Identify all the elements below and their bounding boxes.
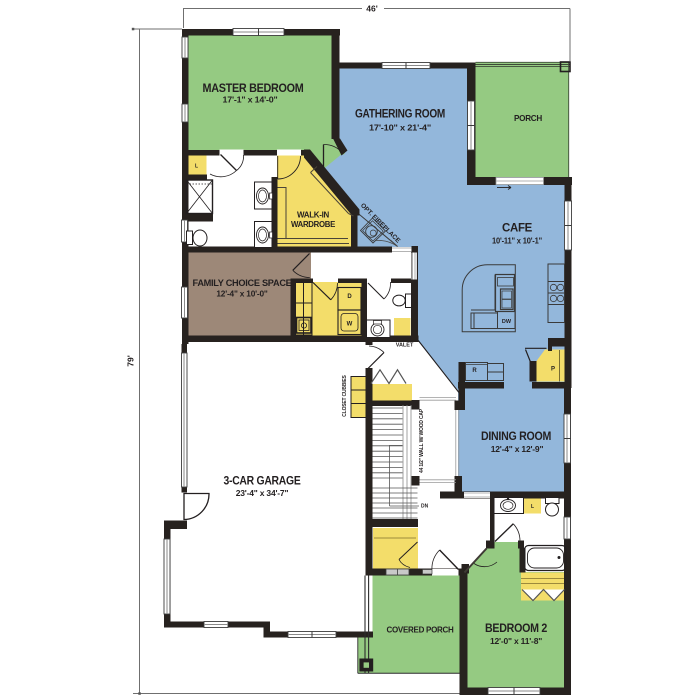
svg-text:DINING ROOM: DINING ROOM (481, 431, 551, 443)
svg-text:12'-4" x 12'-9": 12'-4" x 12'-9" (491, 444, 544, 454)
svg-text:MASTER BEDROOM: MASTER BEDROOM (203, 83, 304, 95)
svg-text:P: P (551, 367, 555, 373)
svg-text:WARDROBE: WARDROBE (291, 220, 336, 229)
svg-text:L: L (531, 504, 534, 510)
svg-text:79': 79' (126, 355, 136, 366)
svg-text:10'-11" x 10'-1": 10'-11" x 10'-1" (492, 236, 542, 246)
svg-text:12'-0" x 11'-8": 12'-0" x 11'-8" (490, 636, 542, 646)
svg-text:R: R (472, 368, 477, 374)
svg-text:17'-1" x 14'-0": 17'-1" x 14'-0" (223, 95, 278, 105)
svg-text:DN: DN (421, 504, 429, 510)
svg-text:23'-4" x 34'-7": 23'-4" x 34'-7" (236, 488, 289, 498)
svg-text:44 1/2" WALL W/ WOOD CAP: 44 1/2" WALL W/ WOOD CAP (419, 408, 425, 473)
svg-text:WALK-IN: WALK-IN (297, 211, 330, 220)
svg-text:FAMILY CHOICE SPACE: FAMILY CHOICE SPACE (193, 278, 293, 289)
svg-text:17'-10" x 21'-4": 17'-10" x 21'-4" (369, 123, 431, 133)
svg-text:CLOSET CUBBIES: CLOSET CUBBIES (342, 374, 348, 416)
svg-text:COVERED PORCH: COVERED PORCH (387, 625, 454, 635)
svg-text:CAFE: CAFE (502, 223, 533, 235)
svg-text:DW: DW (502, 319, 512, 325)
svg-text:46': 46' (366, 4, 377, 14)
svg-text:BEDROOM 2: BEDROOM 2 (485, 623, 547, 635)
svg-text:L: L (195, 164, 198, 170)
svg-text:PORCH: PORCH (514, 113, 542, 123)
svg-text:VALET: VALET (396, 343, 414, 349)
svg-text:W: W (347, 322, 353, 328)
svg-text:12'-4" x 10'-0": 12'-4" x 10'-0" (216, 289, 268, 299)
svg-text:GATHERING ROOM: GATHERING ROOM (355, 109, 445, 121)
svg-text:3-CAR GARAGE: 3-CAR GARAGE (224, 476, 302, 488)
svg-text:D: D (347, 294, 352, 300)
